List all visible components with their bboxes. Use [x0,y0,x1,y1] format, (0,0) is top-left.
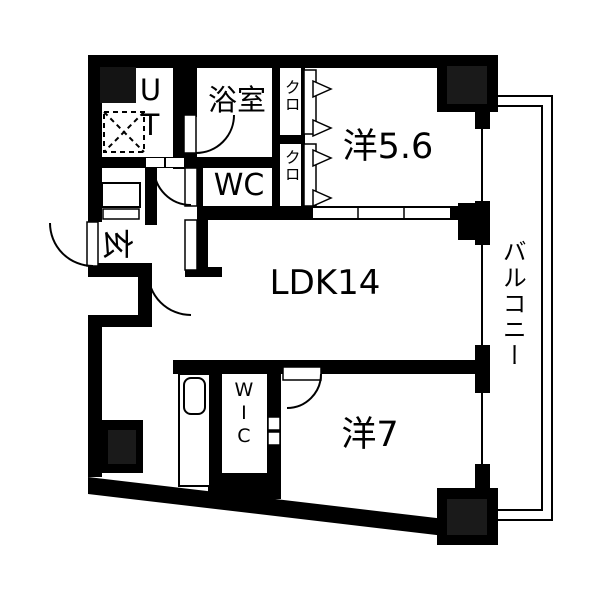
room-label-ldk: LDK14 [255,266,395,302]
hall-door-arc [148,272,191,315]
sink [184,378,205,414]
room-label-western-room-5-6: 洋5.6 [318,129,458,166]
bottom-right-pillar [437,488,498,545]
windows [475,129,490,464]
room-label-balcony: バルコニー [499,239,524,369]
shoe-cabinet [102,183,140,219]
room-label-wic: WIC [233,379,253,448]
room-label-entrance: 玄 [99,226,133,262]
room-label-western-room-7: 洋7 [334,417,406,454]
room-label-closet-lower: クロ [282,149,299,183]
top-right-pillar [437,55,498,112]
room-label-closet-upper: クロ [282,79,299,113]
room-label-ut: UT [135,73,165,143]
partition-slider [313,208,450,218]
room-label-wc: WC [203,170,275,202]
floorplan: UT 浴室 クロ クロ WC 洋5.6 玄 LDK14 WIC 洋7 バルコニー [0,0,600,600]
ldk-pillar [108,430,136,464]
top-left-pillar [100,67,136,103]
room-label-bath: 浴室 [197,85,277,115]
kitchen-counter [179,374,210,486]
bath-door-arc [196,115,234,153]
